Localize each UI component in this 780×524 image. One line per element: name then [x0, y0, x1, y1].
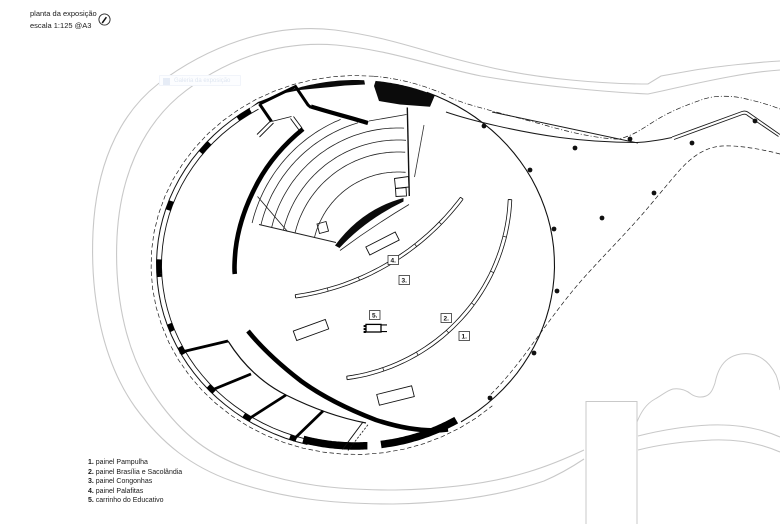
svg-text:5.: 5.: [372, 313, 378, 320]
svg-text:2.: 2.: [443, 316, 449, 323]
svg-text:1.: 1.: [461, 334, 467, 341]
svg-text:4.: 4.: [390, 258, 396, 265]
svg-text:3.: 3.: [401, 278, 407, 285]
